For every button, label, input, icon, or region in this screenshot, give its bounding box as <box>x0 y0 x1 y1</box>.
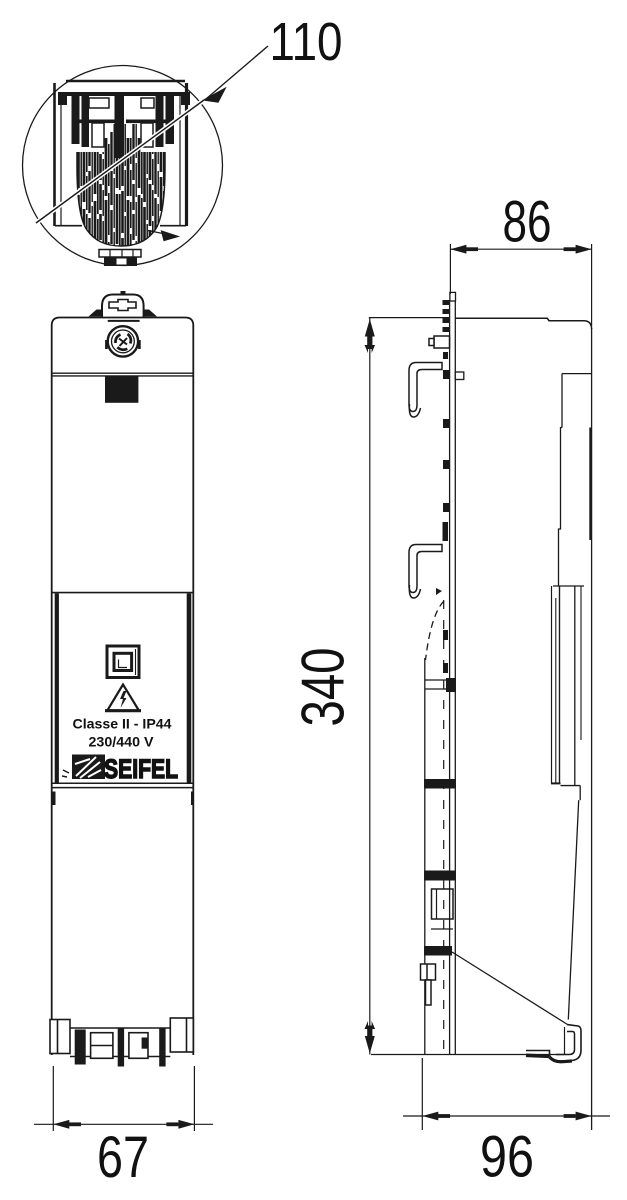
svg-text:SEIFEL: SEIFEL <box>104 754 178 784</box>
svg-text:110: 110 <box>270 12 343 72</box>
svg-text:67: 67 <box>97 1125 149 1190</box>
svg-text:86: 86 <box>503 190 552 255</box>
svg-text:340: 340 <box>289 648 356 727</box>
svg-text:230/440 V: 230/440 V <box>89 735 154 750</box>
svg-text:96: 96 <box>480 1125 534 1190</box>
svg-text:Classe II - IP44: Classe II - IP44 <box>73 717 172 732</box>
